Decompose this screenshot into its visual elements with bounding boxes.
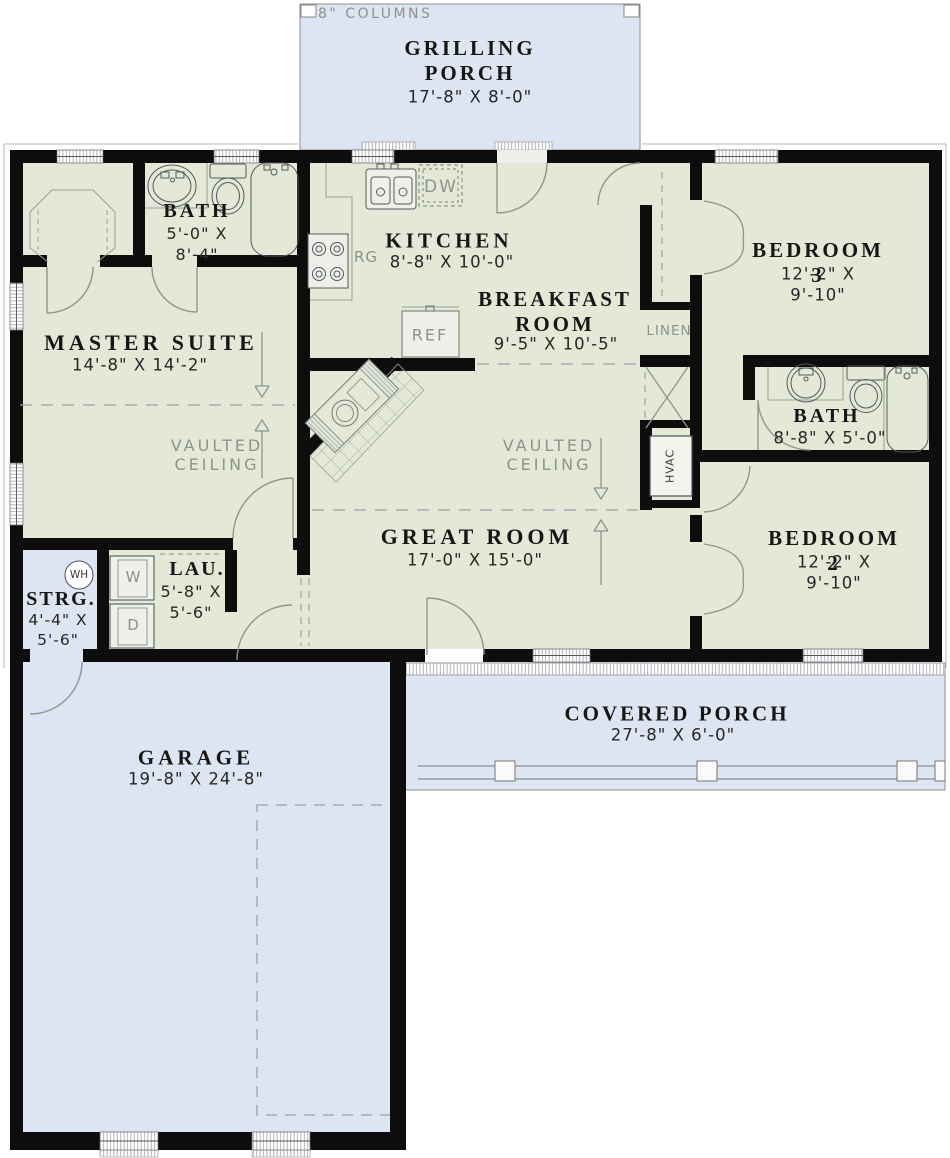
room-dims-great-room: 17'-0" X 15'-0" xyxy=(407,549,543,570)
room-dims-kitchen: 8'-8" X 10'-0" xyxy=(390,251,514,272)
water-heater-label: WH xyxy=(70,569,88,581)
linen-closet-label: LINEN xyxy=(646,324,691,340)
room-label-master-suite: MASTER SUITE xyxy=(44,330,258,356)
room-label-kitchen: KITCHEN xyxy=(385,229,512,254)
room-dims-bedroom3: 12'-2" X 9'-10" xyxy=(752,264,884,307)
room-dims-grilling-porch: 17'-8" X 8'-0" xyxy=(408,86,532,107)
room-dims-master-bath: 5'-0" X 8'-4" xyxy=(167,224,228,266)
range-label: RG xyxy=(354,249,378,267)
room-dims-master-suite: 14'-8" X 14'-2" xyxy=(72,354,208,375)
columns-note: 8" COLUMNS xyxy=(318,6,432,22)
room-label-storage: STRG. xyxy=(26,588,95,612)
room-dims-garage: 19'-8" X 24'-8" xyxy=(128,768,264,789)
room-dims-storage: 4'-4" X 5'-6" xyxy=(28,610,87,650)
garage-floor xyxy=(10,662,406,1150)
grilling-porch-column xyxy=(624,5,639,17)
dishwasher-label: DW xyxy=(424,177,458,197)
grilling-porch-column xyxy=(301,5,316,17)
room-dims-breakfast-room: 9'-5" X 10'-5" xyxy=(494,333,618,354)
room-label-garage: GARAGE xyxy=(138,746,254,771)
room-dims-hall-bath: 8'-8" X 5'-0" xyxy=(774,427,887,448)
room-label-covered-porch: COVERED PORCH xyxy=(564,702,789,727)
room-dims-bedroom2: 12'-2" X 9'-10" xyxy=(776,552,892,595)
room-label-master-bath: BATH xyxy=(163,200,230,224)
room-label-breakfast-room: BREAKFAST ROOM xyxy=(478,287,632,337)
room-dims-covered-porch: 27'-8" X 6'-0" xyxy=(611,724,735,745)
floor-plan: 8" COLUMNS GRILLING PORCH 17'-8" X 8'-0"… xyxy=(0,0,950,1158)
range-icon xyxy=(308,234,348,288)
vaulted-ceiling-note-great: VAULTED CEILING xyxy=(503,437,596,475)
room-label-grilling-porch: GRILLING PORCH xyxy=(404,36,535,86)
room-label-great-room: GREAT ROOM xyxy=(381,524,574,550)
kitchen-sink-icon xyxy=(366,164,416,209)
room-label-laundry: LAU. xyxy=(169,558,224,582)
refrigerator-label: REF xyxy=(412,327,448,346)
washer-label: W xyxy=(126,569,141,587)
hvac-label: HVAC xyxy=(665,449,678,483)
room-dims-laundry: 5'-8" X 5'-6" xyxy=(161,582,222,624)
vaulted-ceiling-note-master: VAULTED CEILING xyxy=(171,437,264,475)
dryer-label: D xyxy=(127,617,139,635)
room-label-hall-bath: BATH xyxy=(793,405,860,429)
